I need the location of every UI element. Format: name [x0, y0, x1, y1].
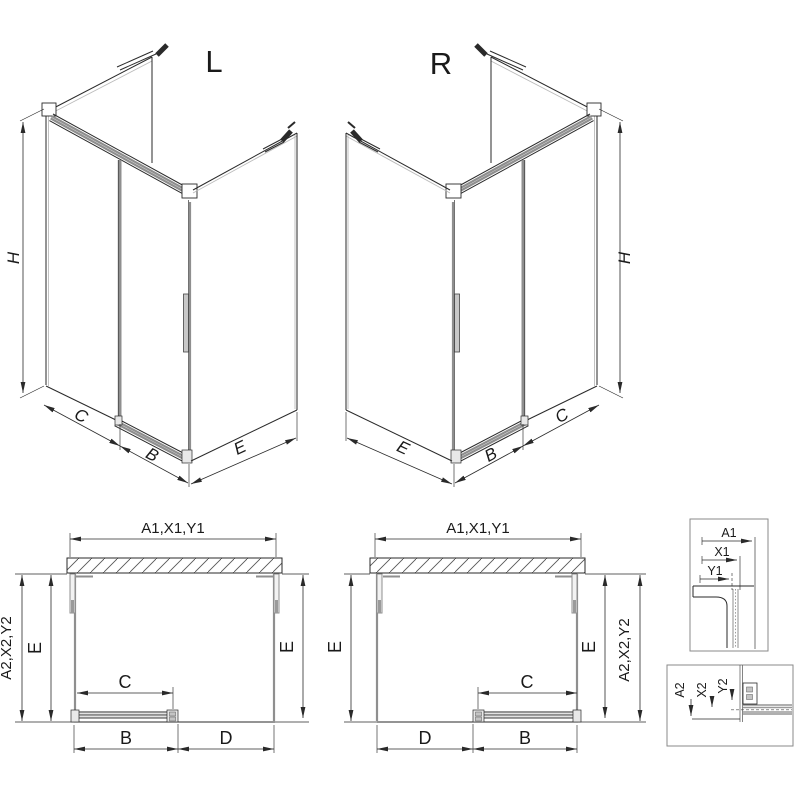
detail-width-view: A1 X1 Y1	[690, 519, 768, 651]
dim-label-x1-detail: X1	[714, 545, 729, 559]
dim-label-a1-detail: A1	[721, 526, 736, 540]
dim-label-c-plan-left: C	[119, 672, 132, 692]
dim-label-y2-detail: Y2	[716, 678, 730, 693]
dim-label-a1-plan-right: A1,X1,Y1	[446, 520, 509, 537]
iso-right-view: R H	[346, 45, 634, 487]
detail-rail-view: A2 X2 Y2	[667, 665, 793, 746]
dim-label-e-right-plan-right: E	[579, 641, 599, 653]
dim-label-h-iso-right: H	[615, 251, 634, 264]
dim-label-b-plan-right: B	[519, 728, 531, 748]
dim-label-b-iso-right: B	[481, 444, 500, 466]
plan-right-view: A1,X1,Y1 E E A2,X2,Y2 C	[325, 520, 646, 753]
dim-label-c-iso-left: C	[71, 405, 91, 428]
dim-label-c-iso-right: C	[552, 404, 572, 427]
dim-label-e-left-plan-right: E	[325, 641, 345, 653]
dim-label-e-left-plan-left: E	[25, 642, 45, 654]
door-handle-right	[455, 294, 460, 352]
door-handle-left	[184, 294, 189, 352]
dim-label-a1-plan-left: A1,X1,Y1	[141, 520, 204, 537]
dim-label-e-iso-left: E	[231, 436, 250, 458]
technical-drawing-page: L	[0, 0, 800, 800]
dim-label-a2-plan-left: A2,X2,Y2	[0, 616, 15, 679]
dim-label-b-iso-left: B	[143, 444, 162, 466]
dim-label-e-right-plan-left: E	[277, 641, 297, 653]
dim-label-c-plan-right: C	[521, 672, 534, 692]
dim-label-b-plan-left: B	[120, 728, 132, 748]
iso-left-view: L	[4, 44, 297, 487]
dim-label-a2-plan-right: A2,X2,Y2	[616, 618, 633, 681]
wall-section-hatched	[370, 558, 585, 573]
dim-label-a2-detail: A2	[673, 682, 687, 697]
dim-label-y1-detail: Y1	[707, 564, 722, 578]
dim-label-e-iso-right: E	[394, 437, 413, 459]
variant-label-left: L	[205, 44, 222, 79]
dim-label-d-plan-left: D	[220, 728, 233, 748]
dim-label-x2-detail: X2	[695, 682, 709, 697]
variant-label-right: R	[430, 46, 452, 81]
wall-section-hatched	[67, 558, 282, 573]
dim-label-d-plan-right: D	[419, 728, 432, 748]
plan-left-view: A1,X1,Y1 A2,X2,Y2 E E	[0, 520, 309, 753]
dim-label-h-iso-left: H	[4, 251, 23, 264]
technical-drawing-canvas: L	[0, 0, 800, 800]
